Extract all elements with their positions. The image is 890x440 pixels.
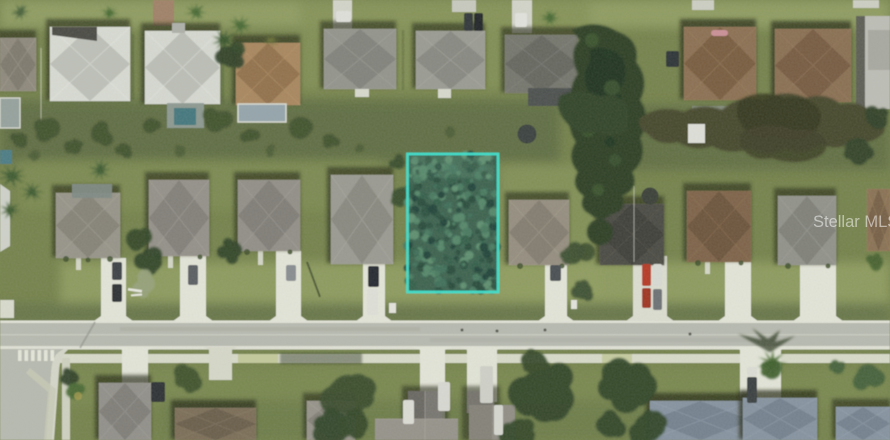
- svg-text:Stellar MLS: Stellar MLS: [813, 213, 890, 231]
